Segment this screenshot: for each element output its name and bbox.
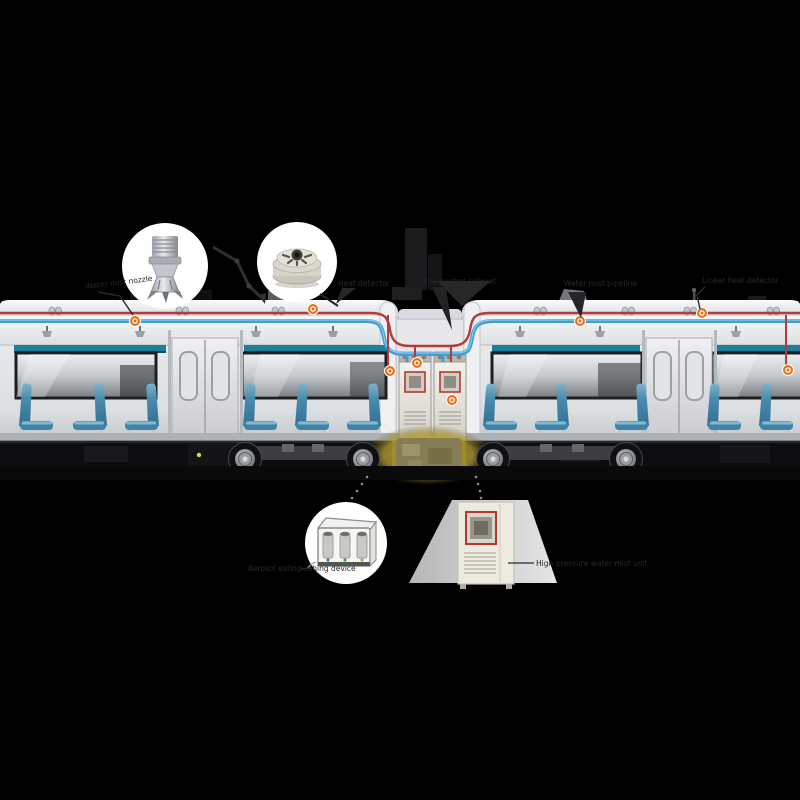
- position-marker: [307, 303, 319, 315]
- detector-callout: [257, 222, 337, 302]
- pump-cabinet-callout: [458, 502, 514, 589]
- label-aerosol-unit: Aerosol extinguishing device: [248, 564, 356, 573]
- train-cutaway: [0, 300, 800, 485]
- position-marker: [696, 307, 708, 319]
- position-marker: [574, 315, 586, 327]
- pump-cabinet-image: [458, 502, 514, 589]
- ground-shadow: [0, 466, 800, 480]
- position-marker: [129, 315, 141, 327]
- label-control-cabinet: Fire control cabinet: [424, 277, 496, 286]
- left-door: [172, 338, 238, 439]
- heat-detector-image: [273, 249, 321, 288]
- position-marker: [446, 394, 458, 406]
- position-marker: [782, 364, 794, 376]
- position-marker: [384, 365, 396, 377]
- label-line-heat-detector: Linear heat detector: [702, 276, 780, 285]
- label-pipeline: Water mist pipeline: [564, 279, 637, 288]
- position-marker: [411, 357, 423, 369]
- train-system-diagram: Water mist nozzle Heat detector Fire con…: [0, 0, 800, 800]
- diagram-canvas: Water mist nozzle Heat detector Fire con…: [0, 0, 800, 800]
- nozzle-callout: [122, 223, 208, 309]
- label-mist-pump-unit: High-pressure water mist unit: [536, 559, 648, 568]
- label-heat-detector: Heat detector: [338, 279, 391, 288]
- right-door: [646, 338, 712, 439]
